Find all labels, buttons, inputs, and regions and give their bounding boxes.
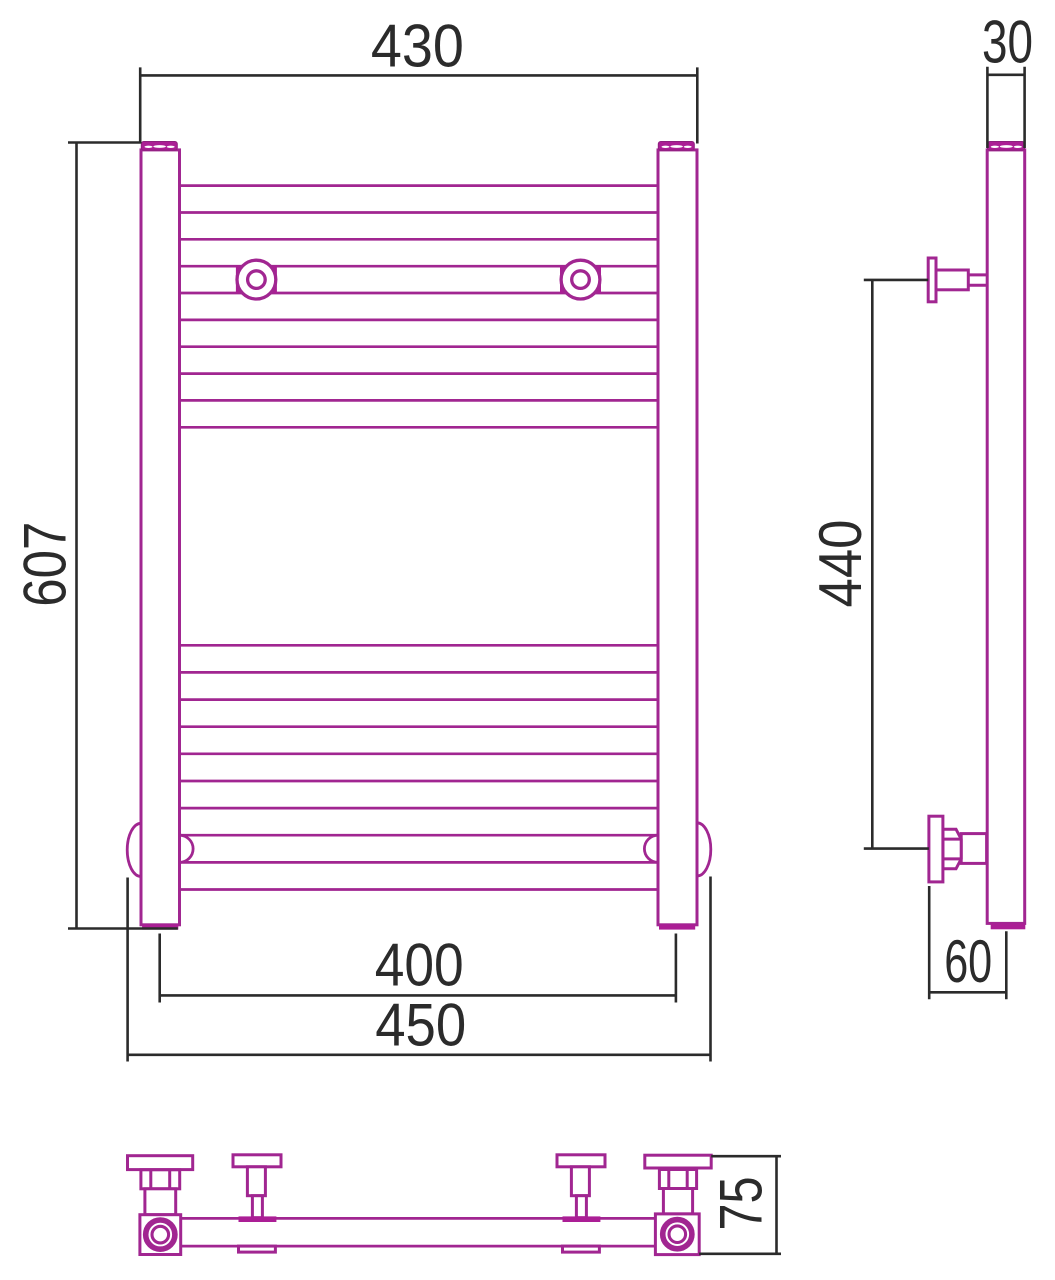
svg-text:30: 30 bbox=[982, 9, 1033, 76]
svg-text:60: 60 bbox=[944, 928, 992, 995]
svg-text:75: 75 bbox=[708, 1177, 775, 1231]
svg-text:607: 607 bbox=[12, 522, 79, 607]
svg-text:450: 450 bbox=[375, 991, 466, 1058]
svg-text:440: 440 bbox=[807, 520, 874, 608]
svg-text:400: 400 bbox=[375, 932, 464, 999]
svg-text:430: 430 bbox=[371, 13, 464, 80]
